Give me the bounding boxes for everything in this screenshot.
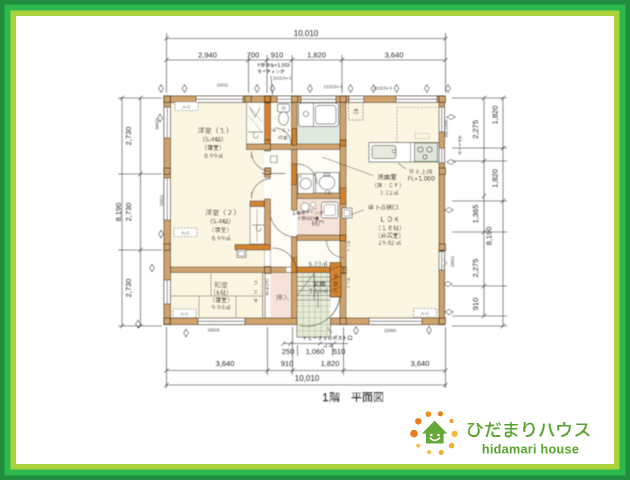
svg-text:250: 250 [282, 347, 295, 356]
svg-text:1,820: 1,820 [307, 51, 326, 60]
svg-text:2,275: 2,275 [471, 259, 480, 278]
svg-text:2,730: 2,730 [124, 127, 133, 146]
svg-text:A-C: A-C [182, 104, 191, 110]
svg-text:15011: 15011 [217, 83, 229, 88]
svg-text:10,010: 10,010 [294, 29, 319, 38]
svg-text:A-C: A-C [180, 311, 189, 317]
svg-text:3,640: 3,640 [385, 51, 404, 60]
svg-text:A-C: A-C [421, 311, 430, 317]
svg-text:16011: 16011 [450, 255, 455, 267]
svg-text:2,940: 2,940 [198, 51, 217, 60]
svg-text:910: 910 [281, 359, 294, 368]
svg-text:1,365: 1,365 [471, 205, 480, 224]
svg-text:06CL090: 06CL090 [444, 119, 449, 137]
svg-text:2,730: 2,730 [124, 203, 133, 222]
svg-text:8,190: 8,190 [114, 203, 123, 222]
svg-text:1,820: 1,820 [321, 359, 340, 368]
svg-text:15011: 15011 [159, 194, 164, 206]
svg-text:A-C: A-C [181, 230, 190, 236]
svg-text:700: 700 [247, 51, 260, 60]
svg-text:15080: 15080 [384, 328, 397, 333]
svg-text:3,640: 3,640 [216, 359, 235, 368]
svg-text:910: 910 [471, 298, 480, 311]
svg-text:15028: 15028 [208, 328, 221, 333]
svg-text:1,820: 1,820 [491, 106, 500, 125]
svg-text:8,190: 8,190 [485, 227, 494, 246]
svg-text:2,275: 2,275 [471, 120, 480, 139]
svg-text:1,060: 1,060 [306, 347, 325, 356]
svg-text:10,010: 10,010 [295, 374, 320, 383]
svg-text:06011: 06011 [155, 117, 160, 129]
svg-text:2,730: 2,730 [124, 279, 133, 298]
svg-text:910: 910 [271, 51, 284, 60]
svg-text:1,820: 1,820 [491, 169, 500, 188]
svg-text:FS: FS [325, 191, 332, 197]
svg-text:510: 510 [333, 347, 346, 356]
svg-text:3,640: 3,640 [411, 359, 430, 368]
svg-text:hidamari house: hidamari house [482, 443, 579, 457]
